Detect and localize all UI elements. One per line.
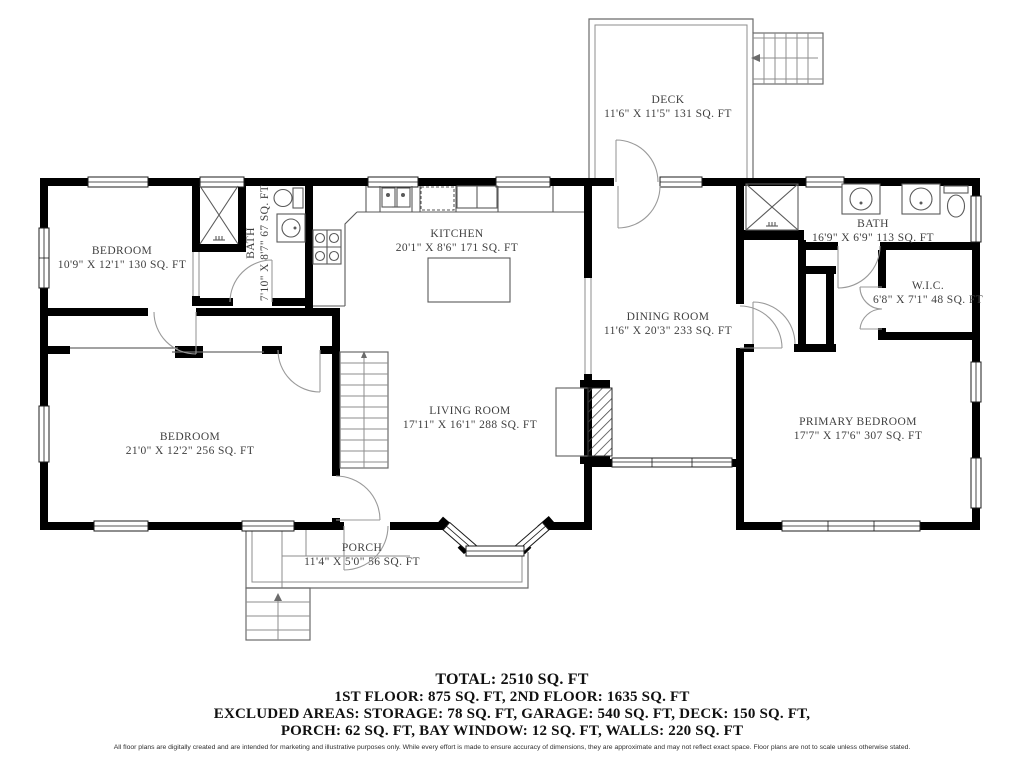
room-label-wic: W.I.C. [912, 280, 944, 292]
summary-total: TOTAL: 2510 SQ. FT [435, 671, 588, 688]
room-dims-living: 17'11" X 16'1" 288 SQ. FT [403, 419, 537, 431]
room-dims-wic: 6'8" X 7'1" 48 SQ. FT [873, 294, 983, 306]
toilet-icon [944, 186, 968, 217]
porch-stairs [246, 588, 310, 640]
toilet-icon [274, 188, 303, 208]
deck-area [589, 19, 823, 180]
sink-icon [277, 214, 305, 242]
summary-excluded-2: PORCH: 62 SQ. FT, BAY WINDOW: 12 SQ. FT,… [281, 723, 743, 739]
shower-icon [200, 186, 238, 244]
door-openings [344, 177, 660, 531]
dishwasher-icon [421, 187, 454, 210]
summary-excluded-1: EXCLUDED AREAS: STORAGE: 78 SQ. FT, GARA… [214, 706, 811, 722]
room-dims-bath-primary: 16'9" X 6'9" 113 SQ. FT [812, 232, 934, 244]
stairs-direction-arrow-icon [751, 54, 760, 62]
stove-icon [313, 230, 341, 264]
room-dims-bedroom-top: 10'9" X 12'1" 130 SQ. FT [58, 259, 187, 271]
room-label-living: LIVING ROOM [429, 405, 510, 417]
floor-plan: DECK 11'6" X 11'5" 131 SQ. FT BEDROOM 10… [0, 0, 1024, 768]
shower-icon [746, 184, 798, 230]
room-label-deck: DECK [652, 94, 685, 106]
sink-icon [842, 184, 880, 214]
interior-staircase [340, 351, 388, 468]
room-dims-primary-bedroom: 17'7" X 17'6" 307 SQ. FT [794, 430, 923, 442]
room-label-porch: PORCH [342, 542, 382, 554]
bay-window [443, 522, 549, 556]
room-dims-bedroom-large: 21'0" X 12'2" 256 SQ. FT [126, 445, 255, 457]
kitchen-island [428, 258, 510, 302]
room-label-primary-bedroom: PRIMARY BEDROOM [799, 416, 917, 428]
disclaimer-text: All floor plans are digitally created an… [114, 744, 911, 751]
room-dims-kitchen: 20'1" X 8'6" 171 SQ. FT [396, 242, 518, 254]
room-label-kitchen: KITCHEN [430, 228, 484, 240]
room-label-dining: DINING ROOM [627, 311, 710, 323]
deck-stairs [751, 33, 823, 84]
floor-plan-page: DECK 11'6" X 11'5" 131 SQ. FT BEDROOM 10… [0, 0, 1024, 768]
room-label-bath-small: BATH [245, 227, 257, 259]
room-label-bedroom-large: BEDROOM [160, 431, 220, 443]
room-dims-dining: 11'6" X 20'3" 233 SQ. FT [604, 325, 732, 337]
room-label-bath-primary: BATH [857, 218, 889, 230]
area-summary: TOTAL: 2510 SQ. FT 1ST FLOOR: 875 SQ. FT… [114, 671, 911, 751]
room-dims-bath-small: 7'10" X 8'7" 67 SQ. FT [259, 185, 271, 301]
kitchen-sink-icon [382, 188, 410, 207]
summary-floors: 1ST FLOOR: 875 SQ. FT, 2ND FLOOR: 1635 S… [334, 689, 689, 705]
room-dims-porch: 11'4" X 5'0" 56 SQ. FT [304, 556, 420, 568]
room-label-bedroom-top: BEDROOM [92, 245, 152, 257]
room-dims-deck: 11'6" X 11'5" 131 SQ. FT [604, 108, 732, 120]
refrigerator-icon [457, 186, 497, 208]
stairs-direction-arrow-icon [274, 593, 282, 601]
sink-icon [902, 184, 940, 214]
